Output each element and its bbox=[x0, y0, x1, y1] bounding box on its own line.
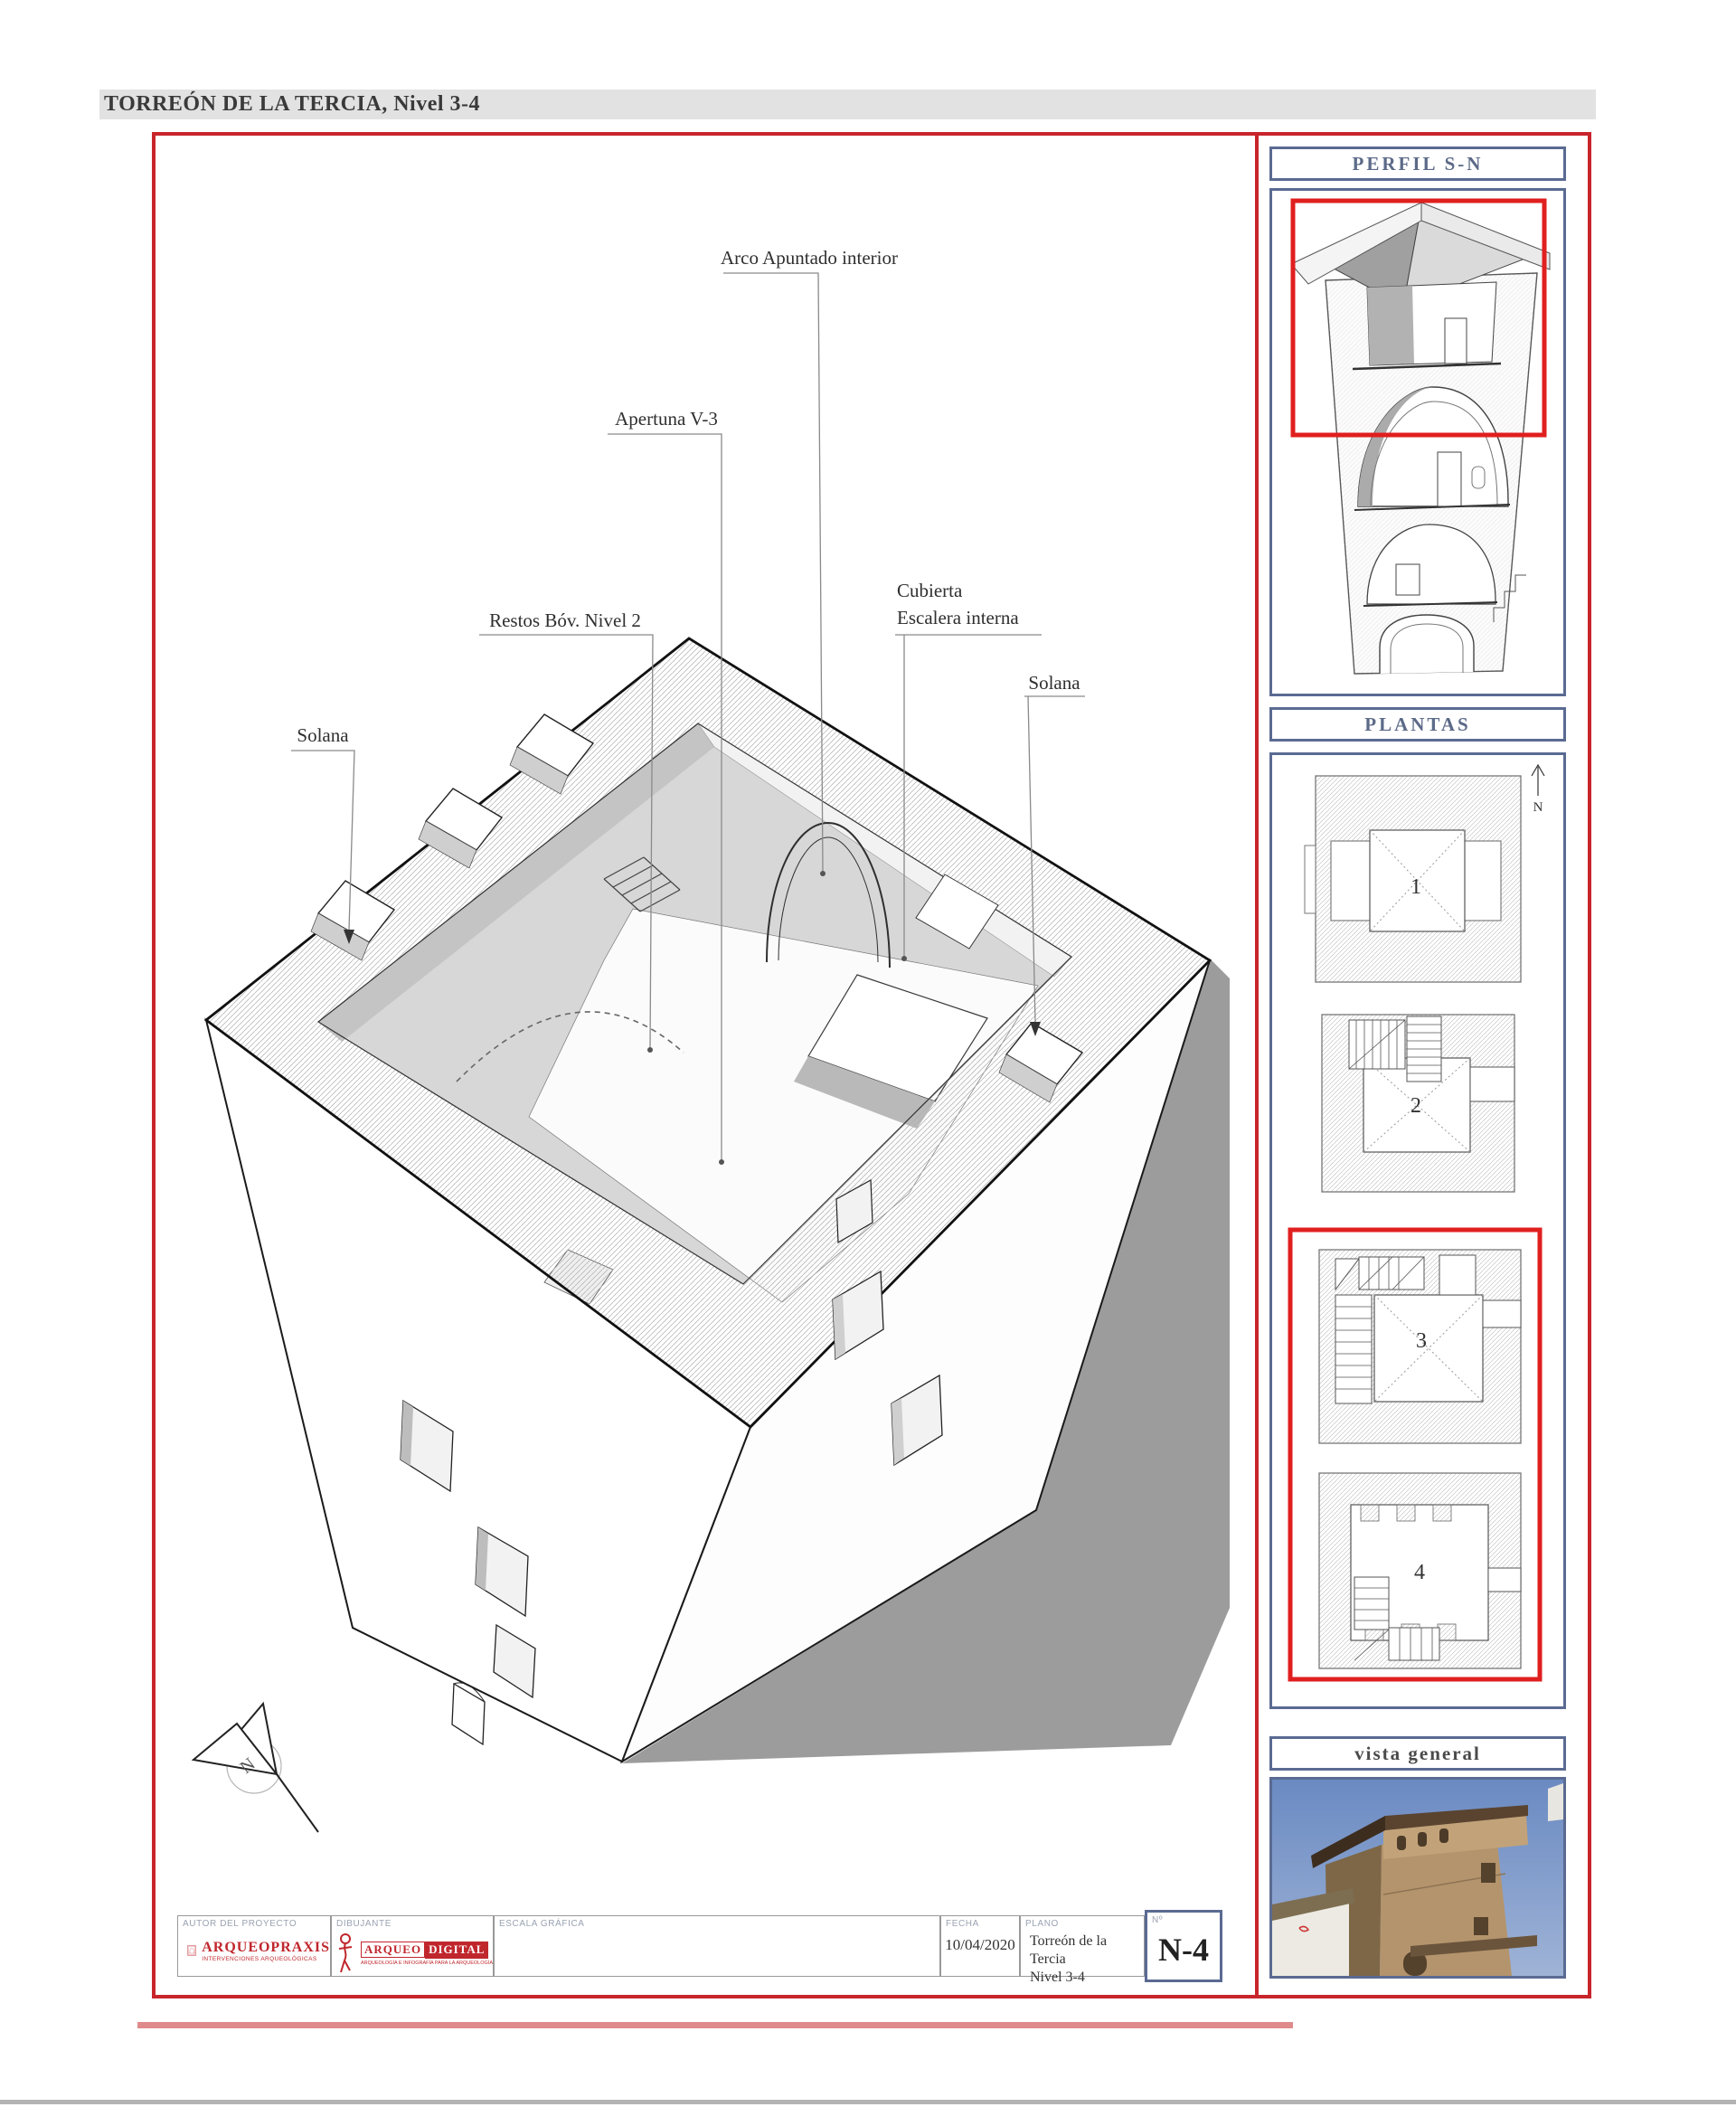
label-cubierta-2: Escalera interna bbox=[897, 607, 1019, 628]
titleblock-dibujante-cell: DIBUJANTE ARQUEO DIGITAL ARQUEOLOGÍA E I… bbox=[331, 1915, 494, 1977]
vista-photo bbox=[1272, 1780, 1563, 1976]
plantas-north-arrow: N bbox=[1532, 765, 1544, 815]
dibujante-label: DIBUJANTE bbox=[332, 1916, 493, 1929]
base-doorway bbox=[452, 1684, 485, 1744]
page-title: TORREÓN DE LA TERCIA, Nivel 3-4 bbox=[99, 90, 1596, 119]
arqueodigital-subtitle: ARQUEOLOGÍA E INFOGRAFÍA PARA LA ARQUEOL… bbox=[361, 1961, 493, 1966]
plan-1: 1 bbox=[1305, 776, 1521, 982]
plantas-header: PLANTAS bbox=[1269, 707, 1566, 742]
vista-title: vista general bbox=[1272, 1739, 1563, 1768]
label-cubierta-1: Cubierta bbox=[897, 580, 963, 601]
numero-label: Nº bbox=[1147, 1913, 1220, 1925]
escala-label: ESCALA GRÁFICA bbox=[495, 1916, 939, 1929]
arqueodigital-name-2: DIGITAL bbox=[425, 1942, 488, 1959]
plano-value-2: Nivel 3-4 bbox=[1030, 1969, 1144, 1987]
numero-value: N-4 bbox=[1147, 1925, 1220, 1974]
autor-label: AUTOR DEL PROYECTO bbox=[178, 1916, 330, 1929]
plano-label: PLANO bbox=[1021, 1916, 1144, 1929]
fecha-value: 10/04/2020 bbox=[941, 1936, 1019, 1954]
perfil-header: PERFIL S-N bbox=[1269, 146, 1566, 181]
page-bottom-line bbox=[0, 2100, 1736, 2104]
label-restos: Restos Bóv. Nivel 2 bbox=[489, 609, 641, 631]
vista-photo-panel bbox=[1269, 1777, 1566, 1979]
plan-3: 3 bbox=[1319, 1250, 1521, 1443]
label-solana-left: Solana bbox=[297, 724, 349, 746]
plan-2: 2 bbox=[1322, 1015, 1514, 1192]
plantas-panel: N 1 2 bbox=[1269, 752, 1566, 1709]
plantas-drawing: N 1 2 bbox=[1272, 755, 1563, 1706]
main-axonometric-drawing: Arco Apuntado interior Apertuna V-3 Rest… bbox=[156, 136, 1255, 1908]
label-arco: Arco Apuntado interior bbox=[721, 247, 898, 269]
vista-header: vista general bbox=[1269, 1736, 1566, 1771]
svg-text:N: N bbox=[1533, 800, 1543, 815]
titleblock-plano-cell: PLANO Torreón de la Tercia Nivel 3-4 bbox=[1020, 1915, 1145, 1977]
plan-2-number: 2 bbox=[1410, 1094, 1421, 1118]
plan-1-number: 1 bbox=[1410, 875, 1421, 899]
titleblock-numero-box: Nº N-4 bbox=[1145, 1910, 1222, 1982]
arqueopraxis-subtitle: INTERVENCIONES ARQUEOLÓGICAS bbox=[202, 1956, 330, 1962]
sheet-title-bar: TORREÓN DE LA TERCIA, Nivel 3-4 bbox=[99, 90, 1596, 119]
bottom-red-rule bbox=[137, 2022, 1293, 2028]
plan-4: 4 bbox=[1319, 1473, 1521, 1668]
titleblock-fecha-cell: FECHA 10/04/2020 bbox=[940, 1915, 1020, 1977]
plantas-title: PLANTAS bbox=[1272, 710, 1563, 739]
perfil-title: PERFIL S-N bbox=[1272, 149, 1563, 178]
titleblock-escala-cell: ESCALA GRÁFICA bbox=[494, 1915, 940, 1977]
plano-value-1: Torreón de la Tercia bbox=[1030, 1932, 1144, 1969]
perfil-panel bbox=[1269, 188, 1566, 696]
arqueopraxis-icon bbox=[187, 1932, 196, 1969]
arqueopraxis-logo: ARQUEOPRAXIS INTERVENCIONES ARQUEOLÓGICA… bbox=[178, 1929, 330, 1969]
arqueopraxis-name: ARQUEOPRAXIS bbox=[202, 1940, 330, 1956]
plan-4-number: 4 bbox=[1414, 1561, 1425, 1584]
label-solana-right: Solana bbox=[1028, 672, 1080, 694]
north-compass: N bbox=[193, 1704, 318, 1832]
arqueodigital-logo: ARQUEO DIGITAL ARQUEOLOGÍA E INFOGRAFÍA … bbox=[332, 1929, 493, 1974]
perfil-drawing bbox=[1272, 191, 1563, 694]
label-apertura: Apertuna V-3 bbox=[615, 408, 718, 430]
plan-3-number: 3 bbox=[1416, 1329, 1427, 1353]
arqueodigital-icon bbox=[335, 1932, 355, 1974]
sidebar-divider bbox=[1255, 132, 1259, 1998]
titleblock-autor-cell: AUTOR DEL PROYECTO ARQUEOPRAXIS INTERVEN… bbox=[177, 1915, 331, 1977]
arqueodigital-name-1: ARQUEO bbox=[361, 1942, 425, 1958]
fecha-label: FECHA bbox=[941, 1916, 1019, 1929]
